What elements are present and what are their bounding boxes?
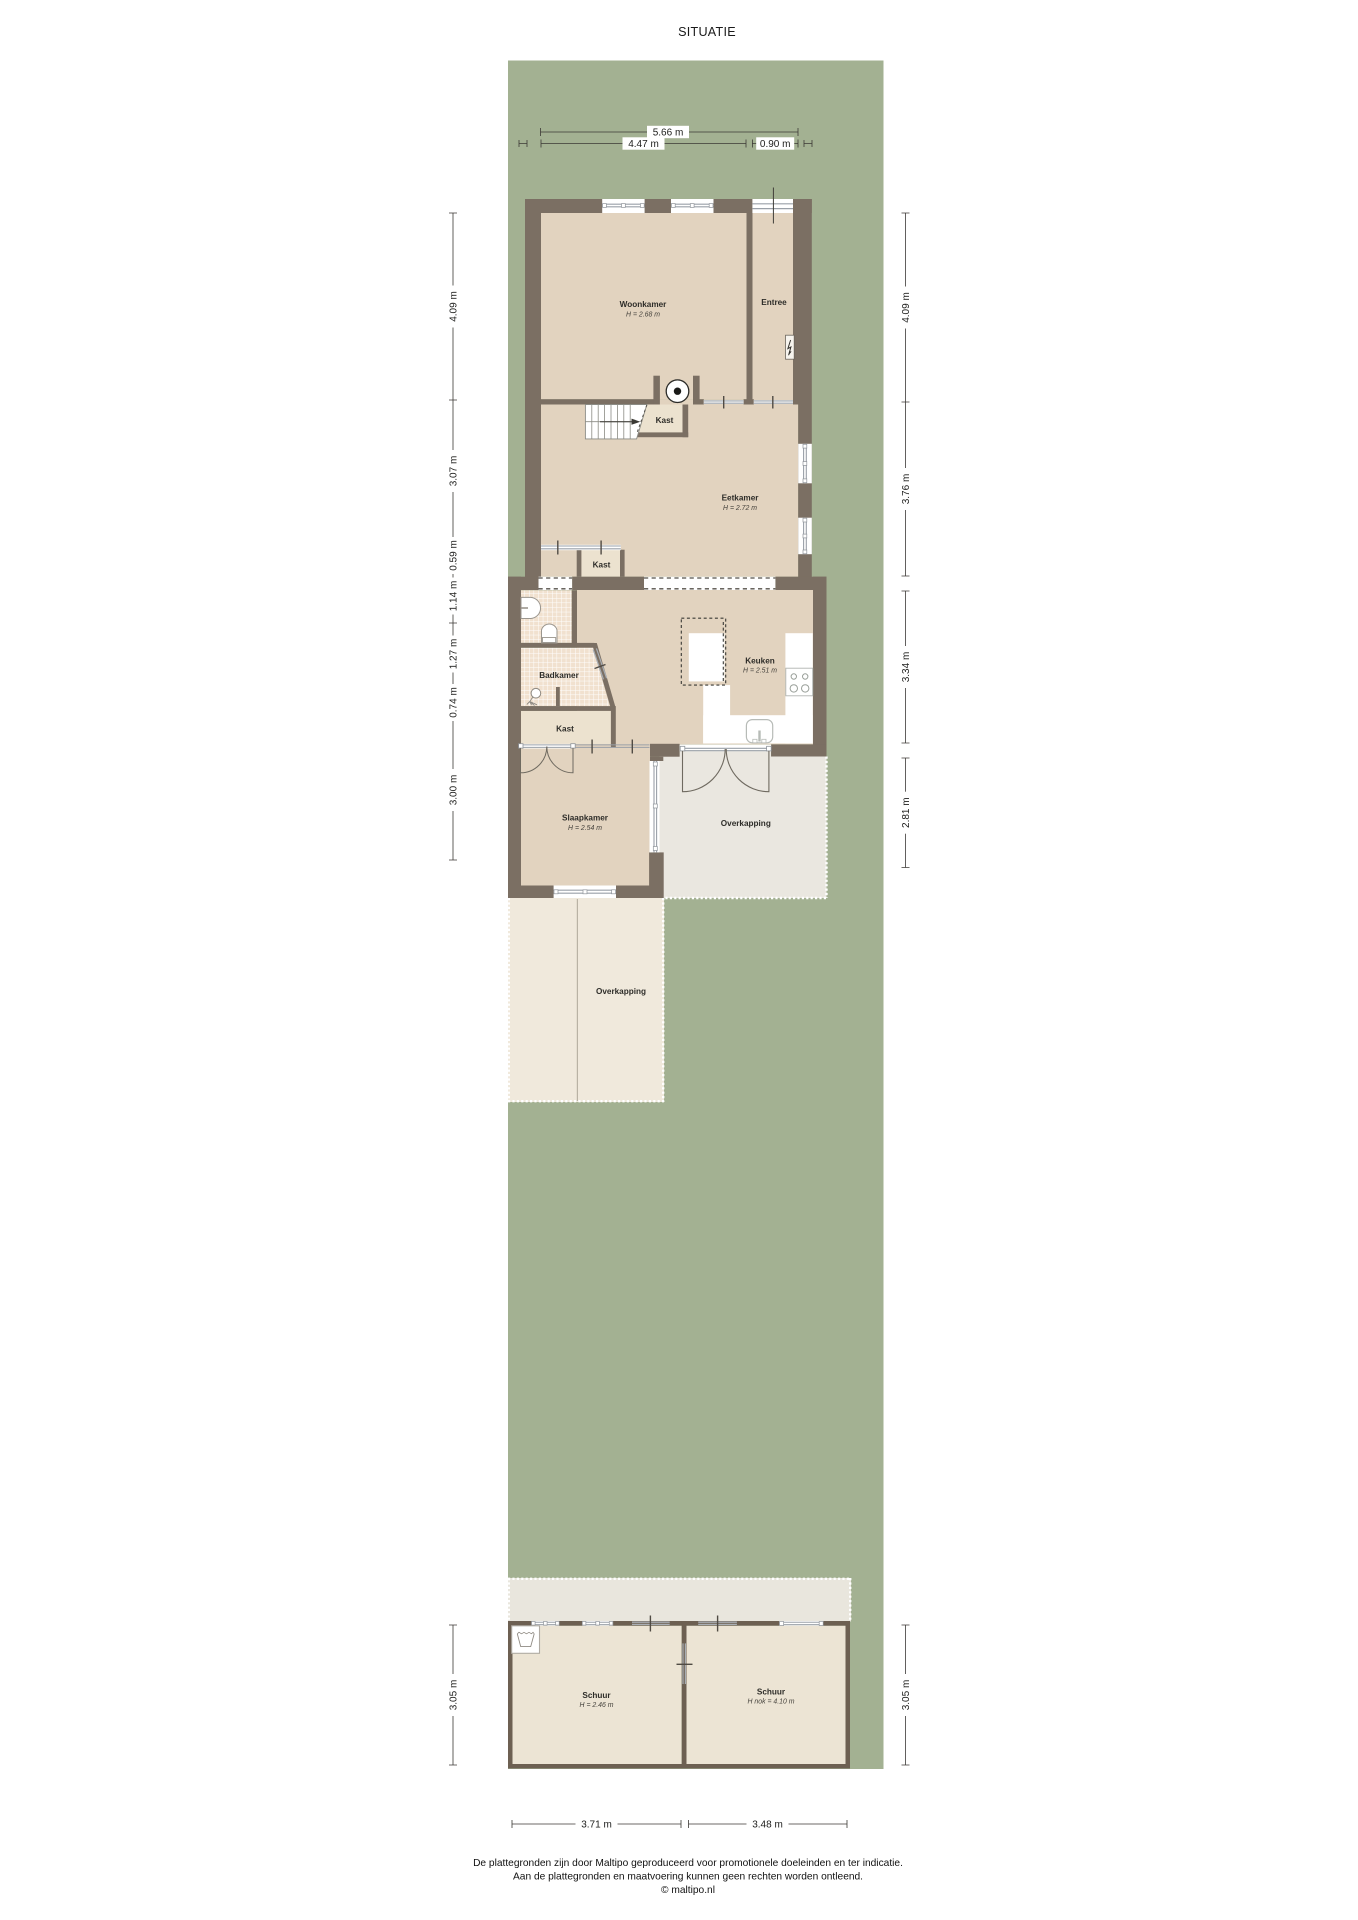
svg-text:1.14 m: 1.14 m bbox=[449, 581, 460, 612]
svg-text:Slaapkamer: Slaapkamer bbox=[562, 814, 609, 823]
svg-text:H = 2.51 m: H = 2.51 m bbox=[743, 668, 777, 675]
svg-text:Kast: Kast bbox=[593, 561, 611, 570]
svg-text:SITUATIE: SITUATIE bbox=[678, 25, 736, 39]
svg-text:Entree: Entree bbox=[761, 298, 787, 307]
svg-text:Kast: Kast bbox=[656, 416, 674, 425]
svg-text:4.09 m: 4.09 m bbox=[449, 291, 460, 322]
svg-text:H nok = 4.10 m: H nok = 4.10 m bbox=[748, 1699, 795, 1706]
svg-text:Woonkamer: Woonkamer bbox=[620, 300, 668, 309]
svg-text:0.74 m: 0.74 m bbox=[449, 687, 460, 718]
svg-text:5.66 m: 5.66 m bbox=[653, 128, 684, 139]
svg-text:Badkamer: Badkamer bbox=[539, 671, 579, 680]
svg-text:Overkapping: Overkapping bbox=[596, 987, 646, 996]
svg-text:3.48 m: 3.48 m bbox=[752, 1820, 783, 1831]
svg-text:3.05 m: 3.05 m bbox=[901, 1680, 912, 1711]
svg-text:3.07 m: 3.07 m bbox=[449, 456, 460, 487]
svg-text:3.00 m: 3.00 m bbox=[449, 775, 460, 806]
svg-text:Aan de plattegronden en maatvo: Aan de plattegronden en maatvoering kunn… bbox=[513, 1872, 863, 1883]
svg-text:3.76 m: 3.76 m bbox=[901, 474, 912, 505]
svg-text:H = 2.72 m: H = 2.72 m bbox=[723, 505, 757, 512]
svg-text:4.09 m: 4.09 m bbox=[901, 292, 912, 323]
svg-text:H = 2.68 m: H = 2.68 m bbox=[626, 312, 660, 319]
svg-text:Schuur: Schuur bbox=[582, 1691, 611, 1700]
svg-text:H = 2.54 m: H = 2.54 m bbox=[568, 825, 602, 832]
svg-text:4.47 m: 4.47 m bbox=[628, 139, 659, 150]
svg-text:Overkapping: Overkapping bbox=[721, 819, 771, 828]
svg-text:Eetkamer: Eetkamer bbox=[722, 494, 760, 503]
svg-text:3.34 m: 3.34 m bbox=[901, 652, 912, 683]
svg-text:2.81 m: 2.81 m bbox=[901, 797, 912, 828]
svg-text:De plattegronden zijn door Mal: De plattegronden zijn door Maltipo gepro… bbox=[473, 1858, 903, 1869]
svg-text:1.27 m: 1.27 m bbox=[449, 639, 460, 670]
svg-text:Keuken: Keuken bbox=[745, 657, 775, 666]
svg-text:0.90 m: 0.90 m bbox=[760, 139, 791, 150]
svg-text:0.59 m: 0.59 m bbox=[449, 540, 460, 571]
svg-text:© maltipo.nl: © maltipo.nl bbox=[661, 1885, 715, 1896]
svg-text:3.05 m: 3.05 m bbox=[449, 1680, 460, 1711]
svg-text:Schuur: Schuur bbox=[757, 1688, 786, 1697]
svg-text:3.71 m: 3.71 m bbox=[581, 1820, 612, 1831]
svg-text:Kast: Kast bbox=[556, 725, 574, 734]
svg-text:H = 2.46 m: H = 2.46 m bbox=[580, 1702, 614, 1709]
